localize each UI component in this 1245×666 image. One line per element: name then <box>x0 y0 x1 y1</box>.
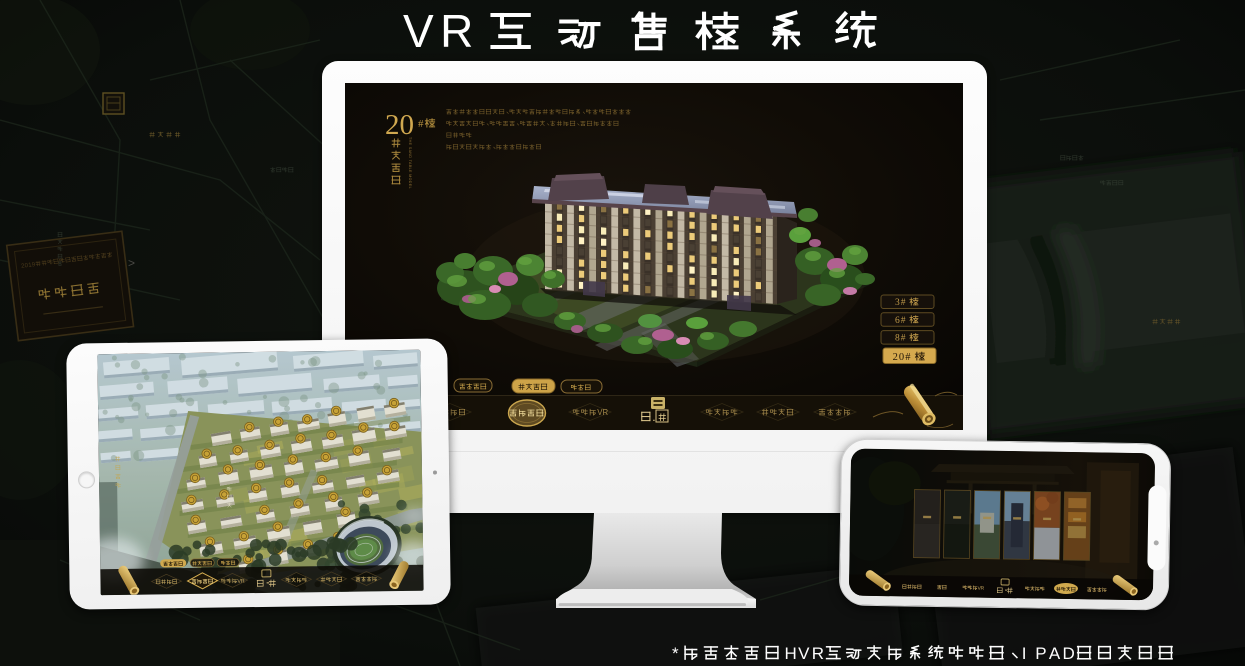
svg-text:6: 6 <box>895 316 900 326</box>
svg-text:*: * <box>672 644 679 663</box>
svg-text:2: 2 <box>893 352 898 363</box>
svg-text:H: H <box>785 644 797 663</box>
svg-text:VR: VR <box>403 5 480 57</box>
svg-text:V: V <box>798 644 810 663</box>
svg-text:I: I <box>1022 644 1027 663</box>
svg-text:THE SAND TABLE MODEL: THE SAND TABLE MODEL <box>408 137 412 189</box>
svg-text:R: R <box>241 579 245 585</box>
svg-text:#: # <box>901 298 906 308</box>
svg-text:>: > <box>128 256 135 270</box>
svg-text:#: # <box>418 118 424 130</box>
svg-text:#: # <box>901 334 906 344</box>
svg-text:R: R <box>980 586 984 592</box>
svg-text:P: P <box>1035 644 1046 663</box>
svg-text:0: 0 <box>899 352 904 363</box>
svg-text:D: D <box>1063 644 1075 663</box>
svg-text:#: # <box>901 316 906 326</box>
svg-text:3: 3 <box>895 298 900 308</box>
svg-text:R: R <box>812 644 824 663</box>
svg-text:#: # <box>905 352 911 363</box>
svg-text:8: 8 <box>895 334 900 344</box>
svg-text:A: A <box>1049 644 1061 663</box>
svg-text:R: R <box>603 408 609 417</box>
svg-text:.: . <box>652 410 655 424</box>
